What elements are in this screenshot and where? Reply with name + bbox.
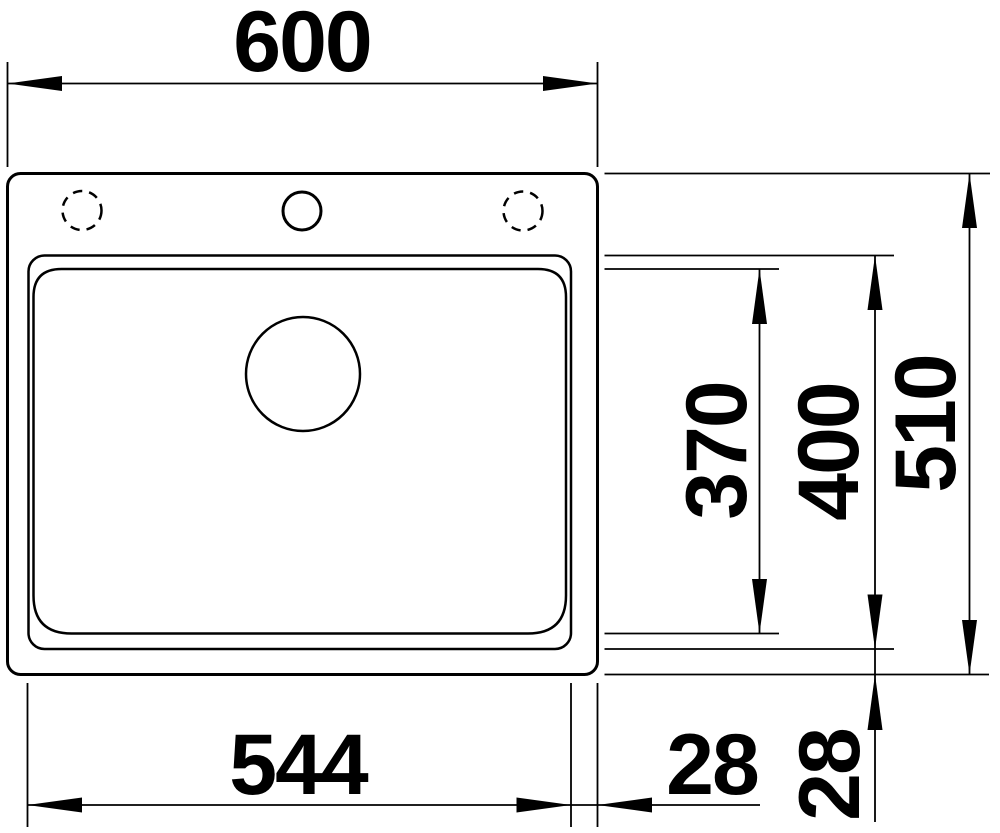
dim-label-370: 370 bbox=[669, 382, 765, 520]
arrowhead-left bbox=[28, 798, 83, 813]
arrowhead-right bbox=[517, 798, 572, 813]
arrowhead-left bbox=[8, 76, 63, 91]
faucet-hole-left-optional bbox=[63, 191, 102, 230]
dim-label-544: 544 bbox=[229, 717, 369, 813]
dim-label-400: 400 bbox=[781, 383, 877, 521]
dim-label-28-horizontal: 28 bbox=[666, 717, 758, 813]
dim-overall-depth: 510 bbox=[878, 174, 977, 675]
arrowhead-up bbox=[962, 174, 977, 229]
dim-label-510: 510 bbox=[878, 355, 974, 493]
arrowhead-up-offset bbox=[868, 675, 883, 731]
faucet-hole-center bbox=[283, 192, 321, 230]
dim-bowl-depth-inner: 370 bbox=[669, 269, 767, 634]
drawing-canvas: 600 370 400 28 510 bbox=[0, 0, 1000, 833]
faucet-hole-right-optional bbox=[504, 192, 543, 231]
arrowhead-right bbox=[543, 76, 598, 91]
dim-overall-width: 600 bbox=[8, 0, 598, 167]
dim-bowl-width: 544 28 bbox=[28, 683, 761, 827]
sink-outer-outline bbox=[8, 174, 598, 675]
dim-label-28-vertical: 28 bbox=[782, 729, 878, 821]
bowl-outer-outline bbox=[29, 256, 572, 650]
dim-bowl-depth-outer: 400 28 bbox=[781, 256, 883, 823]
drain-circle bbox=[246, 317, 360, 431]
arrowhead-up bbox=[752, 269, 767, 324]
sink-technical-drawing: 600 370 400 28 510 bbox=[0, 0, 1000, 833]
bowl-inner-outline bbox=[34, 269, 567, 634]
dim-label-600: 600 bbox=[233, 0, 371, 90]
arrowhead-left-outside bbox=[598, 798, 653, 813]
arrowhead-up bbox=[868, 256, 883, 311]
arrowhead-down bbox=[752, 579, 767, 634]
arrowhead-down bbox=[868, 595, 883, 650]
arrowhead-down bbox=[962, 620, 977, 675]
